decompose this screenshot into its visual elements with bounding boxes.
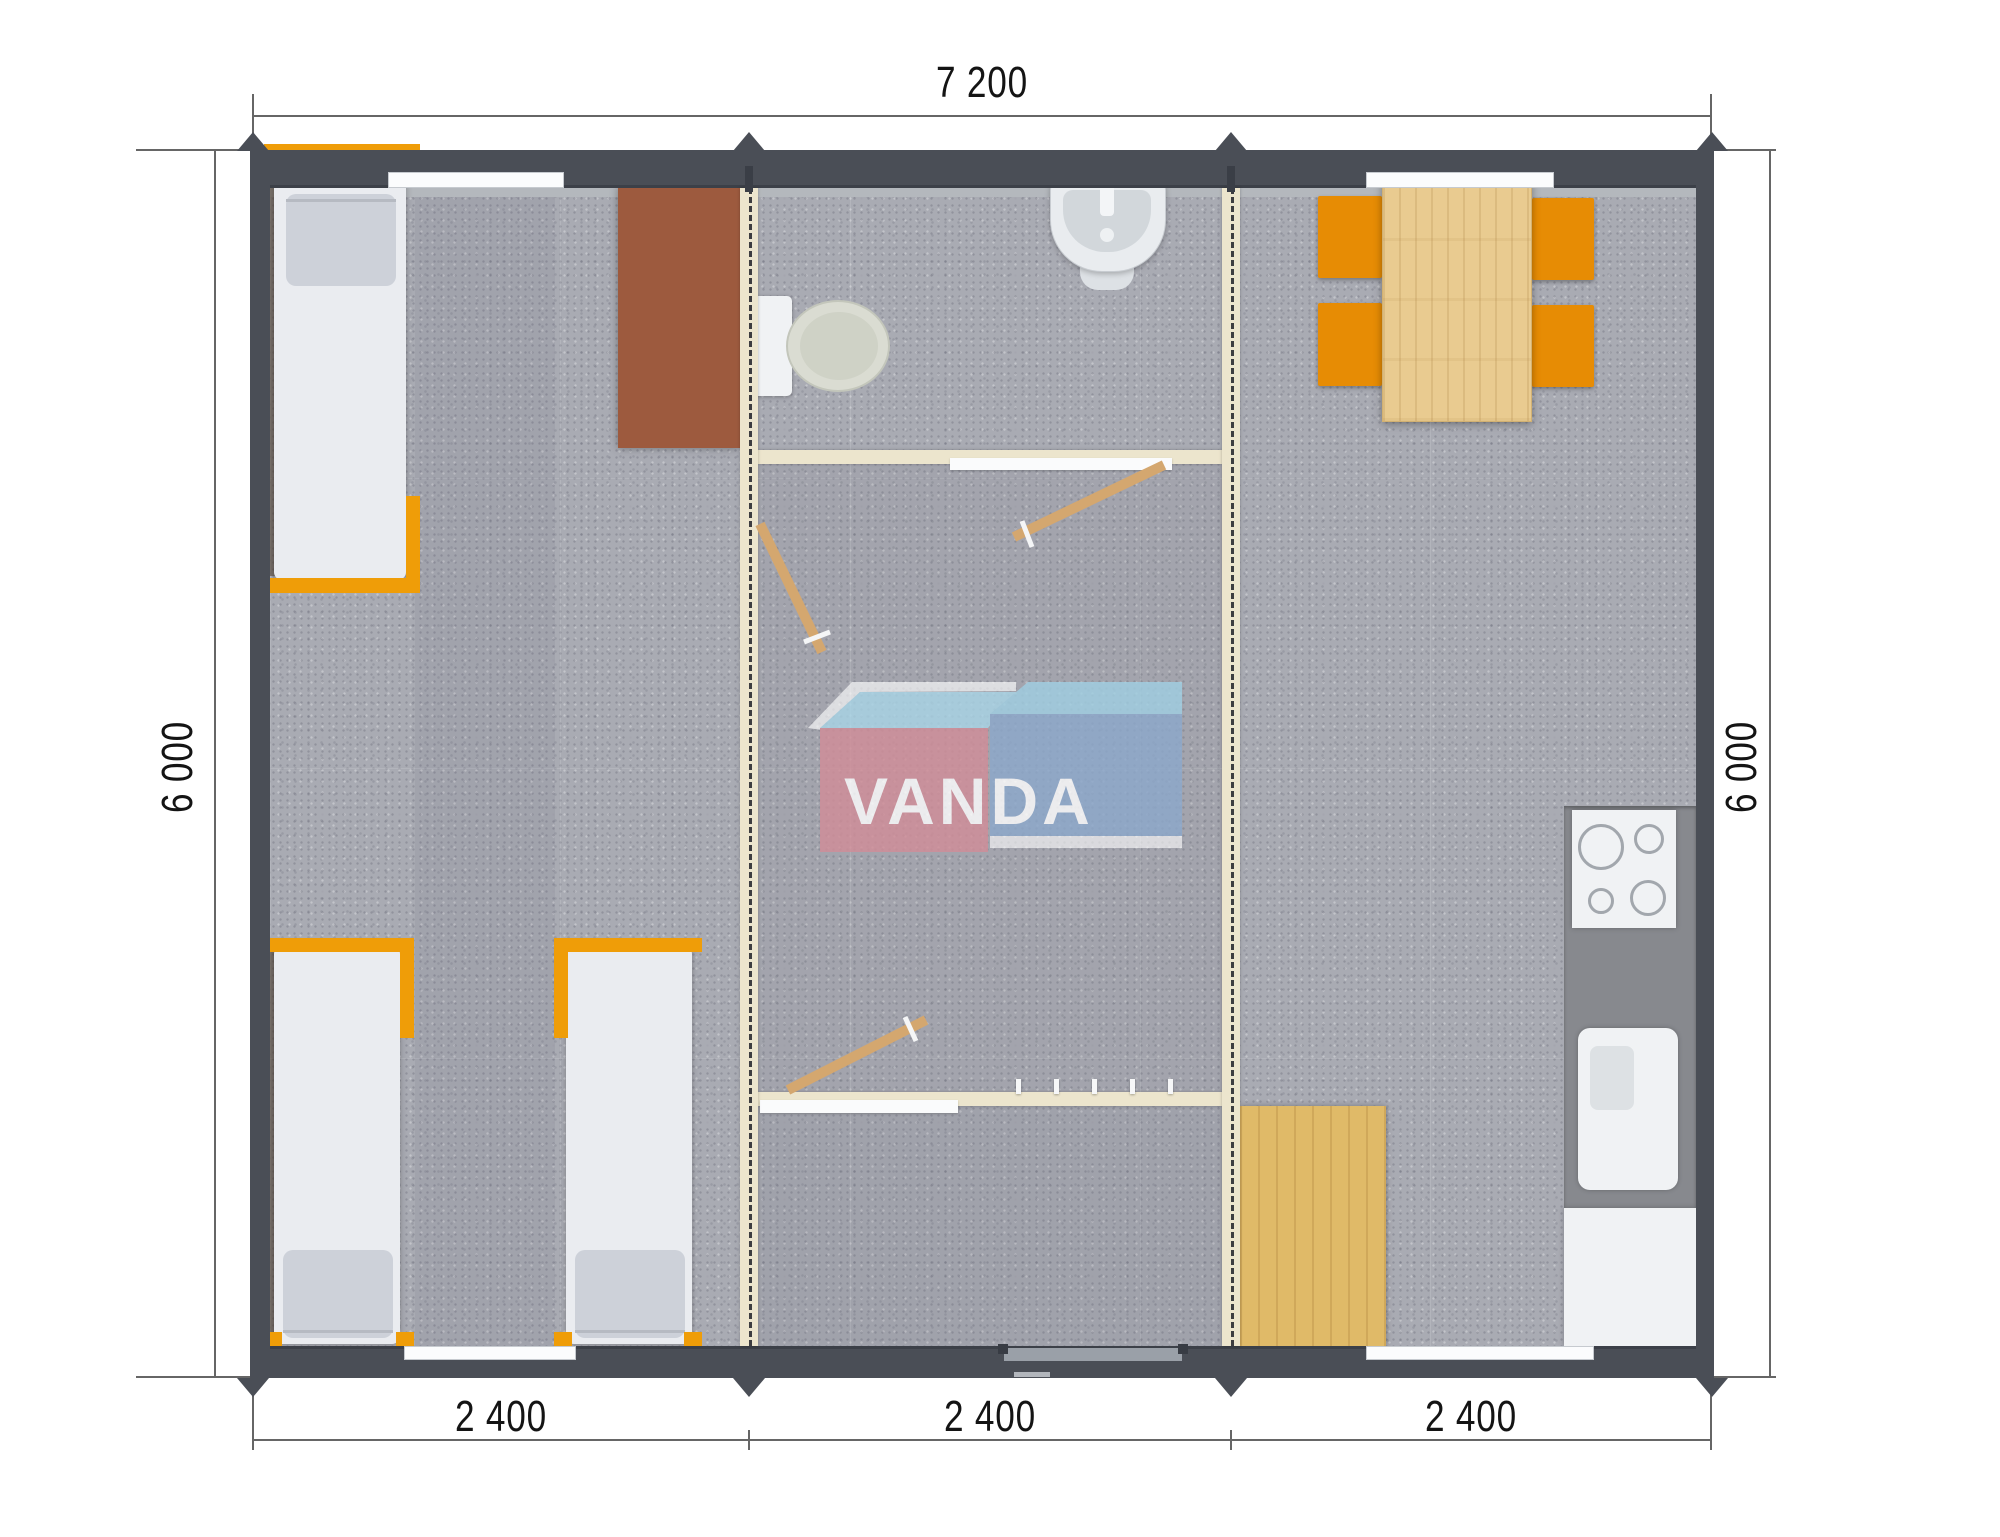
logo-text: VANDA bbox=[844, 764, 1094, 838]
vanda-logo: VANDA bbox=[802, 674, 1194, 862]
floor-plan-canvas: 7 200 2 400 2 400 2 400 6 000 6 000 bbox=[0, 0, 2000, 1537]
bedroom-door-leaf bbox=[760, 524, 830, 652]
hall-door-leaf bbox=[788, 1017, 926, 1090]
bathroom-door-leaf bbox=[1014, 465, 1164, 547]
logo-right-top-face bbox=[990, 682, 1182, 714]
